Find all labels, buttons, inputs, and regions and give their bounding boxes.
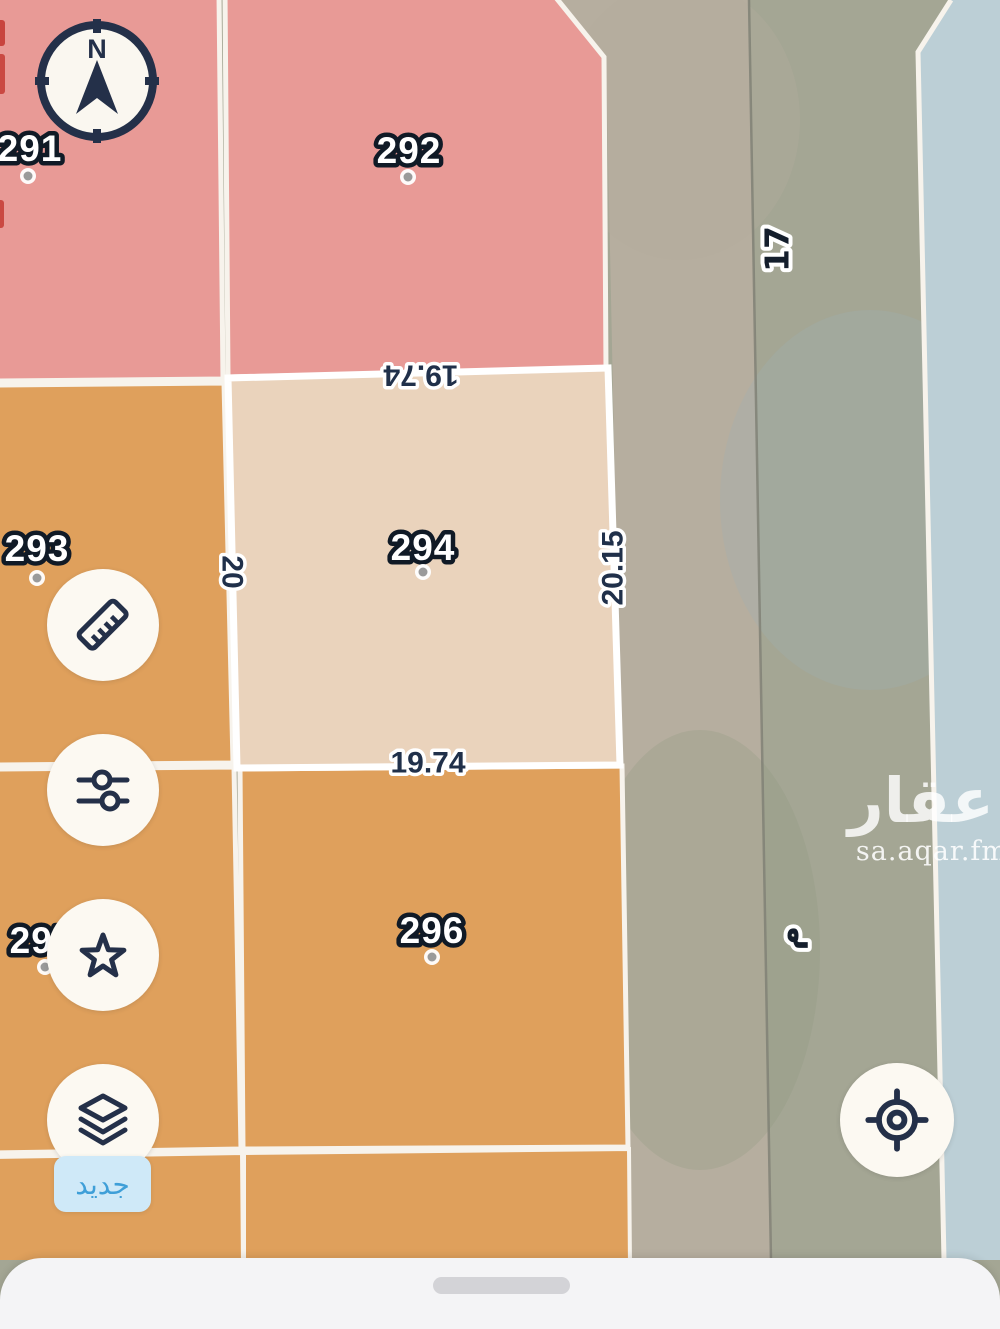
compass-button[interactable]: N xyxy=(32,16,162,146)
street-unit-label: م xyxy=(769,926,808,950)
compass-icon: N xyxy=(32,16,162,146)
plot-label-294: 294 xyxy=(391,527,456,568)
measure-button[interactable] xyxy=(47,569,159,681)
plot-label-292: 292 xyxy=(377,130,442,171)
locate-button[interactable] xyxy=(840,1063,954,1177)
filters-icon xyxy=(71,758,135,822)
plot-label-296: 296 xyxy=(400,910,465,951)
star-icon xyxy=(71,923,135,987)
drag-handle[interactable] xyxy=(433,1277,570,1294)
dim-label-top: 19.74 xyxy=(383,359,458,392)
new-badge: جديد xyxy=(54,1156,151,1212)
favorites-button[interactable] xyxy=(47,899,159,1011)
plot-label-293: 293 xyxy=(5,528,70,569)
filters-button[interactable] xyxy=(47,734,159,846)
ruler-icon xyxy=(71,593,135,657)
layers-icon xyxy=(71,1088,135,1152)
new-badge-label: جديد xyxy=(75,1168,130,1201)
street-number-label: 17 xyxy=(758,226,797,272)
bottom-sheet[interactable] xyxy=(0,1258,1000,1329)
compass-north-label: N xyxy=(87,34,107,64)
dim-label-bottom: 19.74 xyxy=(390,747,465,780)
crosshair-icon xyxy=(863,1086,931,1154)
dim-label-left: 20 xyxy=(216,555,249,588)
map-canvas[interactable]: 291 292 293 294 295 296 19.74 19.74 20 2… xyxy=(0,0,1000,1329)
dim-label-right: 20.15 xyxy=(597,530,630,605)
